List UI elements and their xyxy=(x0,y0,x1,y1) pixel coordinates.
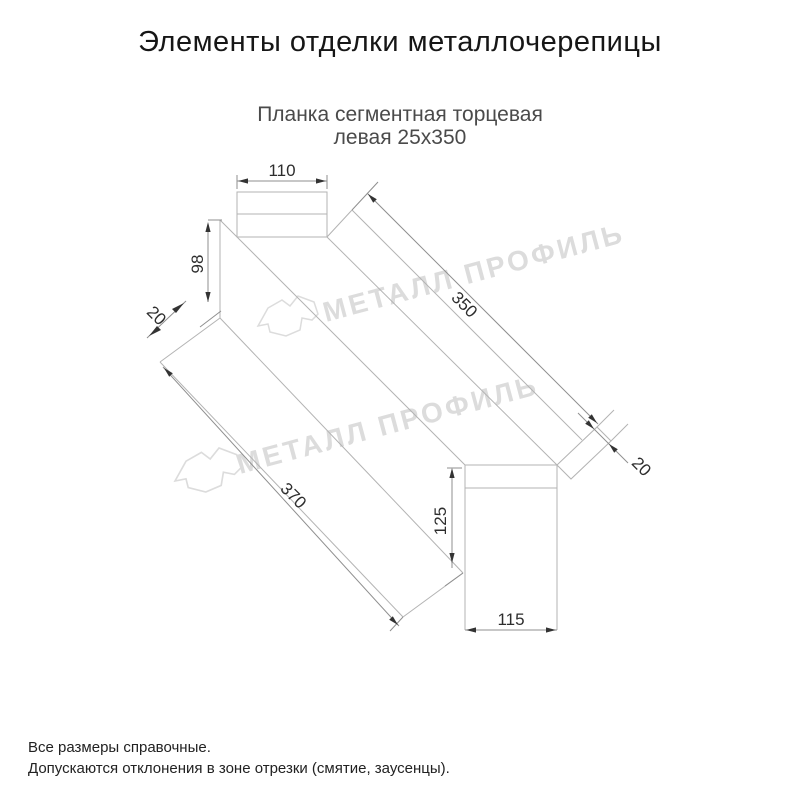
watermark-text: МЕТАЛЛ ПРОФИЛЬ xyxy=(234,369,542,479)
dim-110-label: 110 xyxy=(268,161,295,180)
dimension-left-fold: 20 xyxy=(143,301,186,338)
catalog-page: Элементы отделки металлочерепицы Планка … xyxy=(0,0,800,800)
note-line1: Все размеры справочные. xyxy=(28,737,450,758)
dimension-end-face-width: 115 xyxy=(465,610,557,633)
brand-logo-icon xyxy=(175,448,241,492)
footer-notes: Все размеры справочные. Допускаются откл… xyxy=(28,737,450,779)
dimension-right-fold: 20 xyxy=(578,413,655,480)
dim-115-label: 115 xyxy=(497,610,524,629)
technical-drawing: МЕТАЛЛ ПРОФИЛЬ МЕТАЛЛ ПРОФИЛЬ xyxy=(0,0,800,800)
dim-98-label: 98 xyxy=(188,255,207,274)
dimension-top-flange-width: 110 xyxy=(237,161,327,189)
brand-logo-icon xyxy=(258,296,318,336)
watermark-upper: МЕТАЛЛ ПРОФИЛЬ xyxy=(258,217,628,336)
dim-370-label: 370 xyxy=(277,479,310,512)
dim-125-label: 125 xyxy=(431,507,450,535)
dim-20-left-label: 20 xyxy=(143,302,170,329)
watermark-lower: МЕТАЛЛ ПРОФИЛЬ xyxy=(175,369,542,492)
dimension-web-height: 98 xyxy=(188,220,222,327)
note-line2: Допускаются отклонения в зоне отрезки (с… xyxy=(28,758,450,779)
dim-20-right-label: 20 xyxy=(628,453,655,480)
dimension-bottom-edge-length: 370 xyxy=(163,367,403,631)
